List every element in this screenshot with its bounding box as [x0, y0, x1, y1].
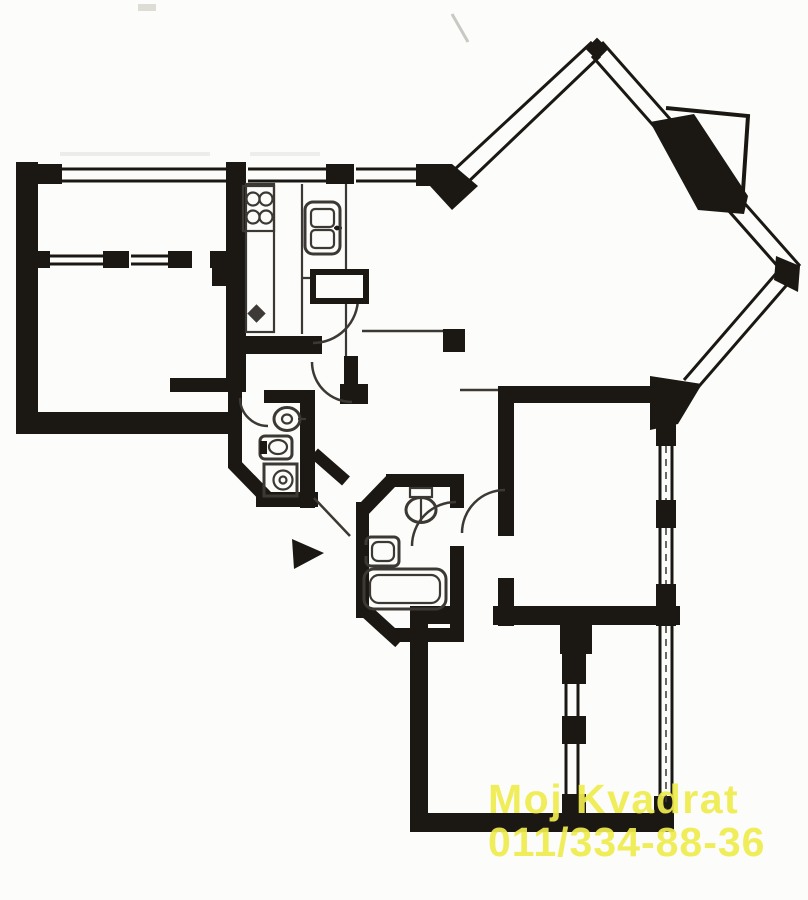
watermark: Moj Kvadrat 011/334-88-36 [488, 778, 765, 865]
watermark-line2: 011/334-88-36 [488, 821, 765, 864]
counter-sink-icon [247, 304, 265, 322]
wc-bidet-icon [260, 436, 292, 459]
bath-toilet-icon [406, 488, 436, 523]
chamfer-walls [233, 453, 400, 642]
entrance-arrow-icon [292, 539, 324, 569]
floor-plan-svg [0, 0, 808, 900]
floor-plan-page: Moj Kvadrat 011/334-88-36 [0, 0, 808, 900]
stove-icon [243, 186, 274, 231]
structural-column [362, 329, 465, 352]
kitchen-appliance-box [313, 272, 366, 301]
bathtub-icon [364, 569, 446, 609]
scan-smudges [60, 4, 468, 156]
kitchen-double-sink-icon [305, 202, 342, 254]
washbasin-icon [361, 537, 399, 566]
watermark-line1: Moj Kvadrat [488, 778, 765, 821]
